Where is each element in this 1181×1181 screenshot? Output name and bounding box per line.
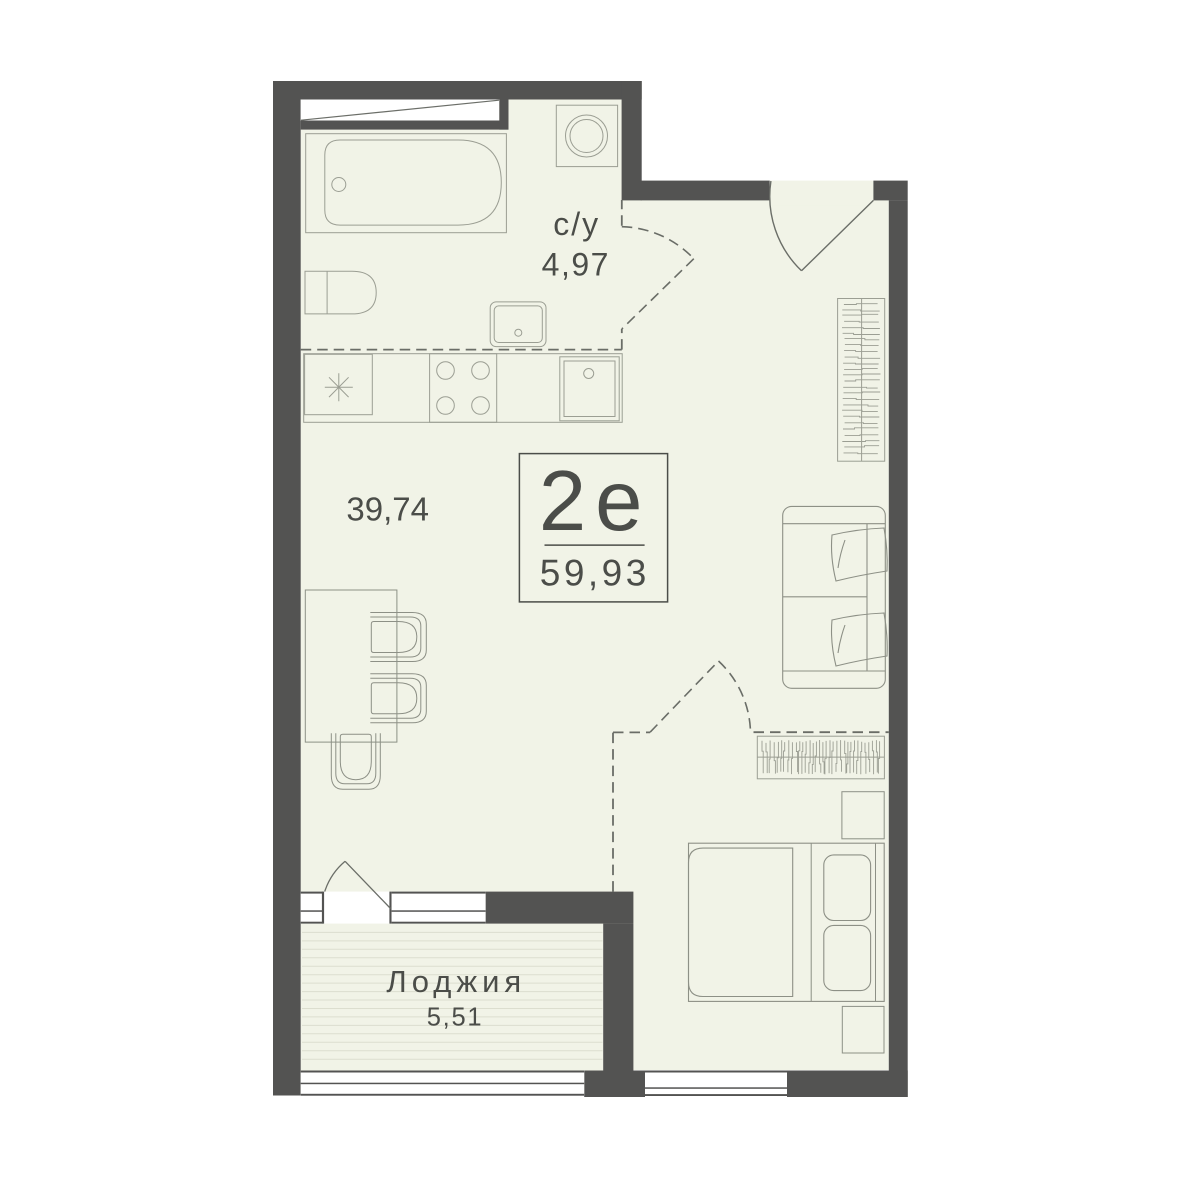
svg-text:5,51: 5,51 [427,1004,483,1032]
svg-text:59,93: 59,93 [540,552,650,593]
svg-text:4,97: 4,97 [542,246,610,282]
svg-text:2е: 2е [539,454,652,549]
svg-text:с/у: с/у [553,206,600,242]
svg-text:39,74: 39,74 [346,491,429,528]
svg-text:Лоджия: Лоджия [386,964,526,999]
